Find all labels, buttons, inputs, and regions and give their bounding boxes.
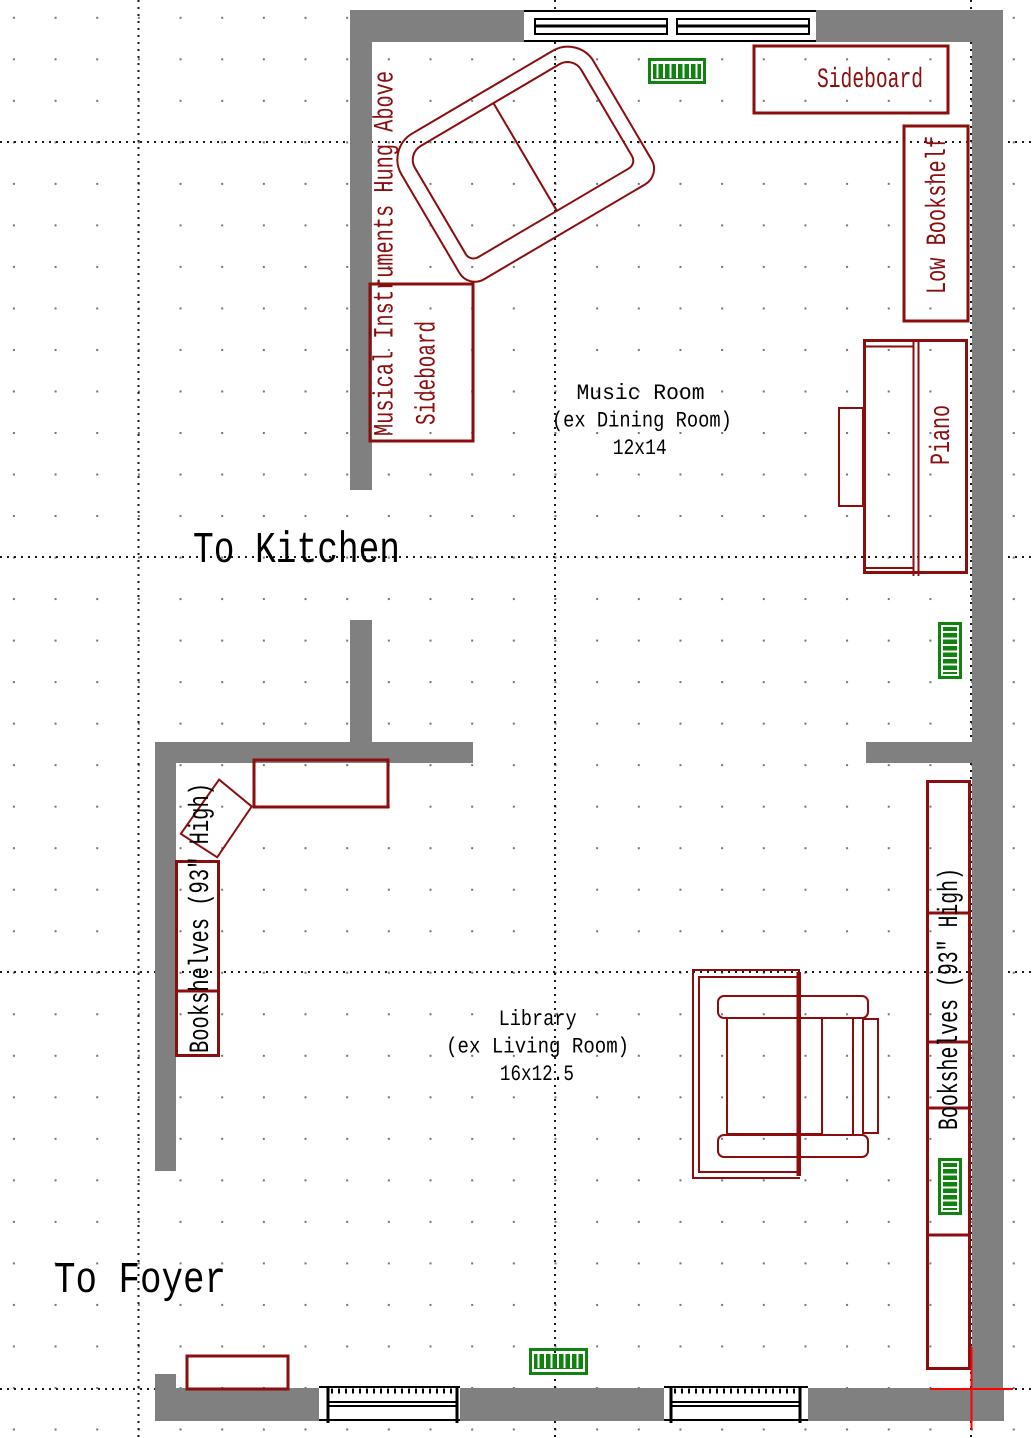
svg-text:Piano: Piano [927, 405, 958, 465]
svg-text:(ex Dining Room): (ex Dining Room) [552, 409, 732, 434]
svg-text:Low Bookshelf: Low Bookshelf [923, 136, 954, 294]
svg-text:To Foyer: To Foyer [54, 1256, 226, 1306]
svg-text:Music Room: Music Room [577, 381, 705, 406]
svg-text:(ex Living Room): (ex Living Room) [446, 1034, 629, 1059]
svg-text:Library: Library [499, 1007, 577, 1032]
svg-text:Musical Instruments Hung Above: Musical Instruments Hung Above [371, 71, 402, 436]
svg-text:Bookshelves (93" High): Bookshelves (93" High) [935, 868, 966, 1130]
svg-text:To Kitchen: To Kitchen [193, 526, 400, 576]
svg-text:Sideboard: Sideboard [817, 65, 923, 96]
svg-text:12x14: 12x14 [613, 436, 667, 461]
svg-text:Bookshelves (93" High): Bookshelves (93" High) [186, 783, 217, 1053]
svg-text:16x12.5: 16x12.5 [500, 1062, 574, 1087]
svg-text:Sideboard: Sideboard [413, 321, 444, 425]
